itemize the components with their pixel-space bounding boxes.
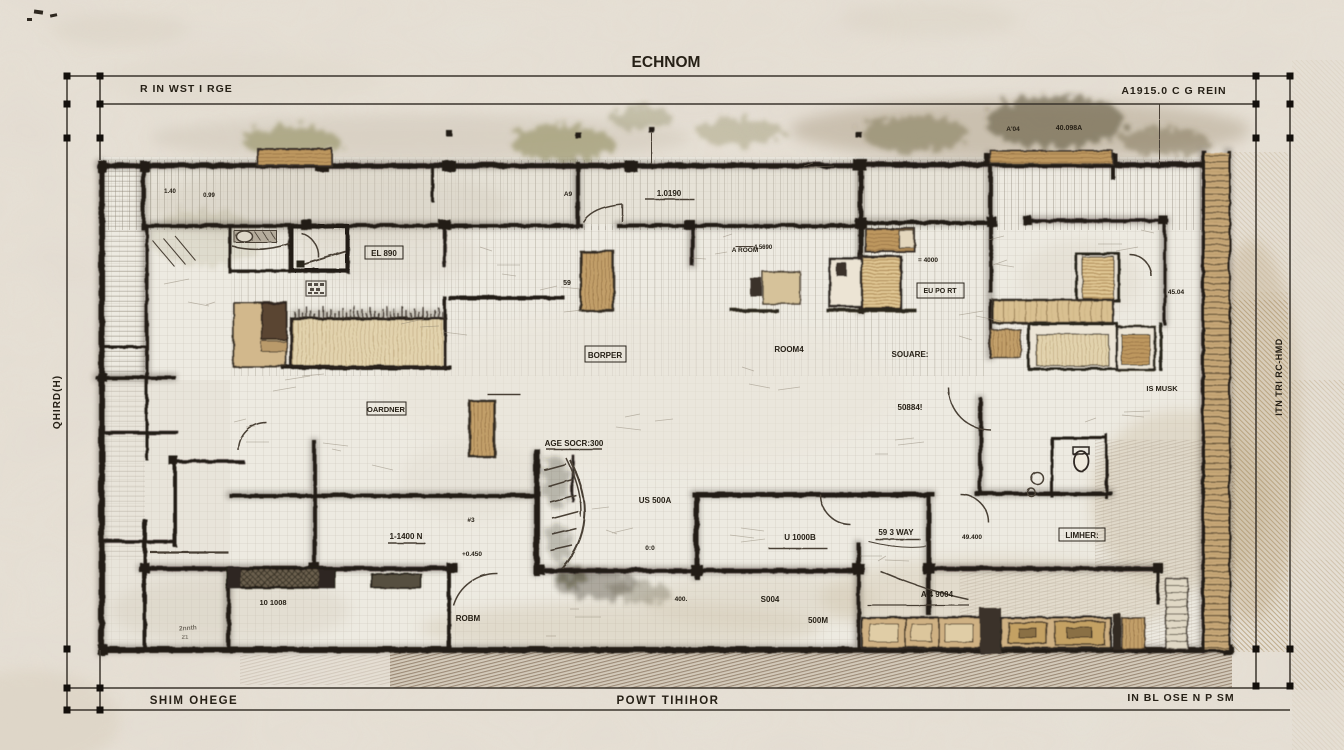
svg-text:ITN TRI RC-HMD: ITN TRI RC-HMD [1274,338,1284,416]
svg-text:40.098A: 40.098A [1056,125,1082,132]
svg-text:59: 59 [563,280,571,287]
svg-text:500M: 500M [808,616,828,625]
svg-text:400.: 400. [675,596,688,603]
svg-text:US 500A: US 500A [639,496,672,505]
svg-text:2nnth: 2nnth [179,624,197,632]
svg-text:A'04: A'04 [1006,126,1020,133]
svg-text:ECHNOM: ECHNOM [632,54,701,71]
svg-text:EU PO RT: EU PO RT [923,288,957,295]
svg-text:0:0: 0:0 [645,545,655,552]
svg-text:IN BL OSE N P SM: IN BL OSE N P SM [1127,692,1234,704]
svg-text:S004: S004 [761,595,780,604]
svg-text:59 3 WAY: 59 3 WAY [878,528,914,537]
svg-text:R IN WST I RGE: R IN WST I RGE [140,83,233,95]
svg-text:A 4 9004: A 4 9004 [921,590,954,599]
svg-text:EL 890: EL 890 [371,249,397,258]
svg-text:4.5690: 4.5690 [754,245,773,251]
svg-text:21: 21 [182,635,189,641]
svg-text:IS MUSK: IS MUSK [1146,384,1178,393]
svg-text:U 1000B: U 1000B [784,533,816,542]
svg-text:= 4000: = 4000 [918,257,938,264]
svg-text:ROOM4: ROOM4 [774,345,804,354]
svg-text:A9: A9 [564,191,573,198]
svg-text:SHIM OHEGE: SHIM OHEGE [150,695,238,707]
svg-text:POWT TIHIHOR: POWT TIHIHOR [617,695,720,707]
svg-text:A1915.0 C G REIN: A1915.0 C G REIN [1121,85,1226,97]
svg-text:0.99: 0.99 [203,193,215,199]
svg-text:SOUARE:: SOUARE: [892,350,929,359]
svg-text:49.400: 49.400 [962,534,982,541]
svg-text:AGE SOCR:300: AGE SOCR:300 [545,439,604,448]
svg-text:ROBM: ROBM [456,614,481,623]
svg-text:#3: #3 [467,517,475,524]
svg-text:50884!: 50884! [898,403,923,412]
svg-text:BORPER: BORPER [588,351,622,360]
svg-text:LIMHER:: LIMHER: [1065,531,1098,540]
svg-text:10 1008: 10 1008 [259,598,286,607]
svg-text:1.40: 1.40 [164,189,176,195]
svg-text:45.04: 45.04 [1168,289,1185,296]
svg-text:QHIRD(H): QHIRD(H) [52,375,63,429]
svg-text:OARDNER: OARDNER [367,405,406,414]
svg-text:1-1400 N: 1-1400 N [390,532,423,541]
svg-text:1.0190: 1.0190 [657,189,682,198]
svg-text:+0.450: +0.450 [462,551,482,558]
